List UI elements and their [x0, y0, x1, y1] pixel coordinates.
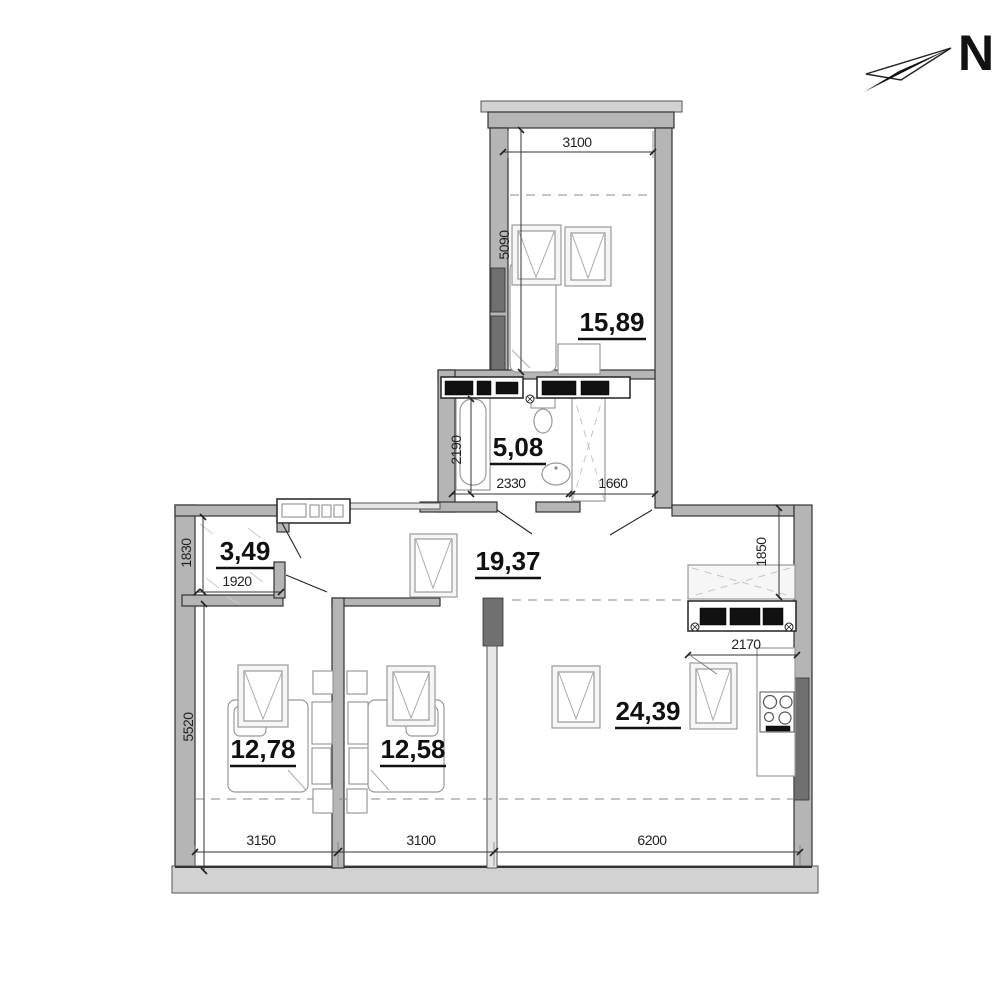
room-area-label-bedroom-left: 12,78	[230, 734, 295, 764]
door-swing	[282, 523, 301, 558]
nightstand-icon	[347, 671, 367, 694]
wall-balcony-stub	[274, 562, 285, 598]
stove-icon	[760, 692, 794, 732]
wall-bedroom-divider	[332, 598, 344, 868]
window-marker	[491, 268, 505, 312]
furniture-living-kitchen	[552, 565, 796, 776]
wardrobe-icon	[552, 666, 600, 728]
pillar	[483, 598, 503, 646]
dimension-label: 5090	[496, 230, 512, 260]
room-area-label-bathroom: 5,08	[493, 432, 544, 462]
wardrobe-icon	[387, 666, 435, 726]
dimension-label: 2330	[496, 475, 526, 491]
nightstand-icon	[348, 702, 368, 744]
window-marker-right	[794, 678, 809, 800]
door-swing	[286, 575, 327, 592]
room-area-label-top-bedroom: 15,89	[579, 307, 644, 337]
room-area-label-balcony: 3,49	[220, 536, 271, 566]
wall-bedroom-right-top	[332, 598, 440, 606]
wall-topsection-right	[655, 128, 672, 508]
nightstand-icon	[312, 702, 332, 744]
wall-top-left-segment	[175, 505, 278, 516]
wall-top-inner	[488, 112, 674, 128]
wall-bottom	[172, 866, 818, 893]
toilet-icon	[531, 398, 555, 433]
dimension-label: 5520	[180, 712, 196, 742]
wardrobe-icon	[690, 663, 737, 729]
nightstand-icon	[313, 671, 333, 694]
dimension-label: 3100	[406, 832, 436, 848]
floor-plan-page: 3100 5090 2190 2330 1660 1830 1920 1850 …	[0, 0, 1000, 1000]
wall-top-thin-segment	[350, 503, 440, 509]
stool-icon	[347, 789, 367, 813]
floor-plan-drawing: 3100 5090 2190 2330 1660 1830 1920 1850 …	[0, 0, 1000, 1000]
dimension-label: 2190	[448, 435, 464, 465]
wardrobe-icon	[512, 225, 561, 285]
wardrobe-icon	[410, 534, 457, 597]
sink-icon	[542, 463, 570, 485]
dimension-label: 1920	[222, 573, 252, 589]
dimension-label: 6200	[637, 832, 667, 848]
north-label: N	[958, 25, 994, 81]
wardrobe-icon	[565, 227, 611, 286]
nightstand-icon	[558, 344, 600, 374]
room-area-label-hallway: 19,37	[475, 546, 540, 576]
nightstand-icon	[349, 748, 368, 784]
wall-bath-bottom-right	[536, 502, 580, 512]
dimension-label: 1850	[753, 537, 769, 567]
door-swing	[497, 510, 532, 534]
window-marker	[491, 316, 505, 370]
stool-icon	[313, 789, 333, 813]
dimension-label: 1830	[178, 538, 194, 568]
dimension-label: 3150	[246, 832, 276, 848]
entry-cabinet-icon	[277, 499, 350, 532]
room-area-label-living-kitchen: 24,39	[615, 696, 680, 726]
kitchen-cabinets-icon	[688, 601, 796, 631]
furniture-top-bedroom	[510, 225, 611, 374]
dimension-label: 2170	[731, 636, 761, 652]
north-arrow-icon: N	[864, 25, 994, 92]
nightstand-icon	[312, 748, 331, 784]
dimension-label: 3100	[562, 134, 592, 150]
wardrobe-icon	[238, 665, 288, 727]
door-swing	[610, 510, 652, 535]
wall-top-outer	[481, 101, 682, 112]
wall-top-right-segment	[672, 505, 794, 516]
wall-livingroom-divider	[487, 646, 497, 868]
dimension-label: 1660	[598, 475, 628, 491]
room-area-label-bedroom-right: 12,58	[380, 734, 445, 764]
